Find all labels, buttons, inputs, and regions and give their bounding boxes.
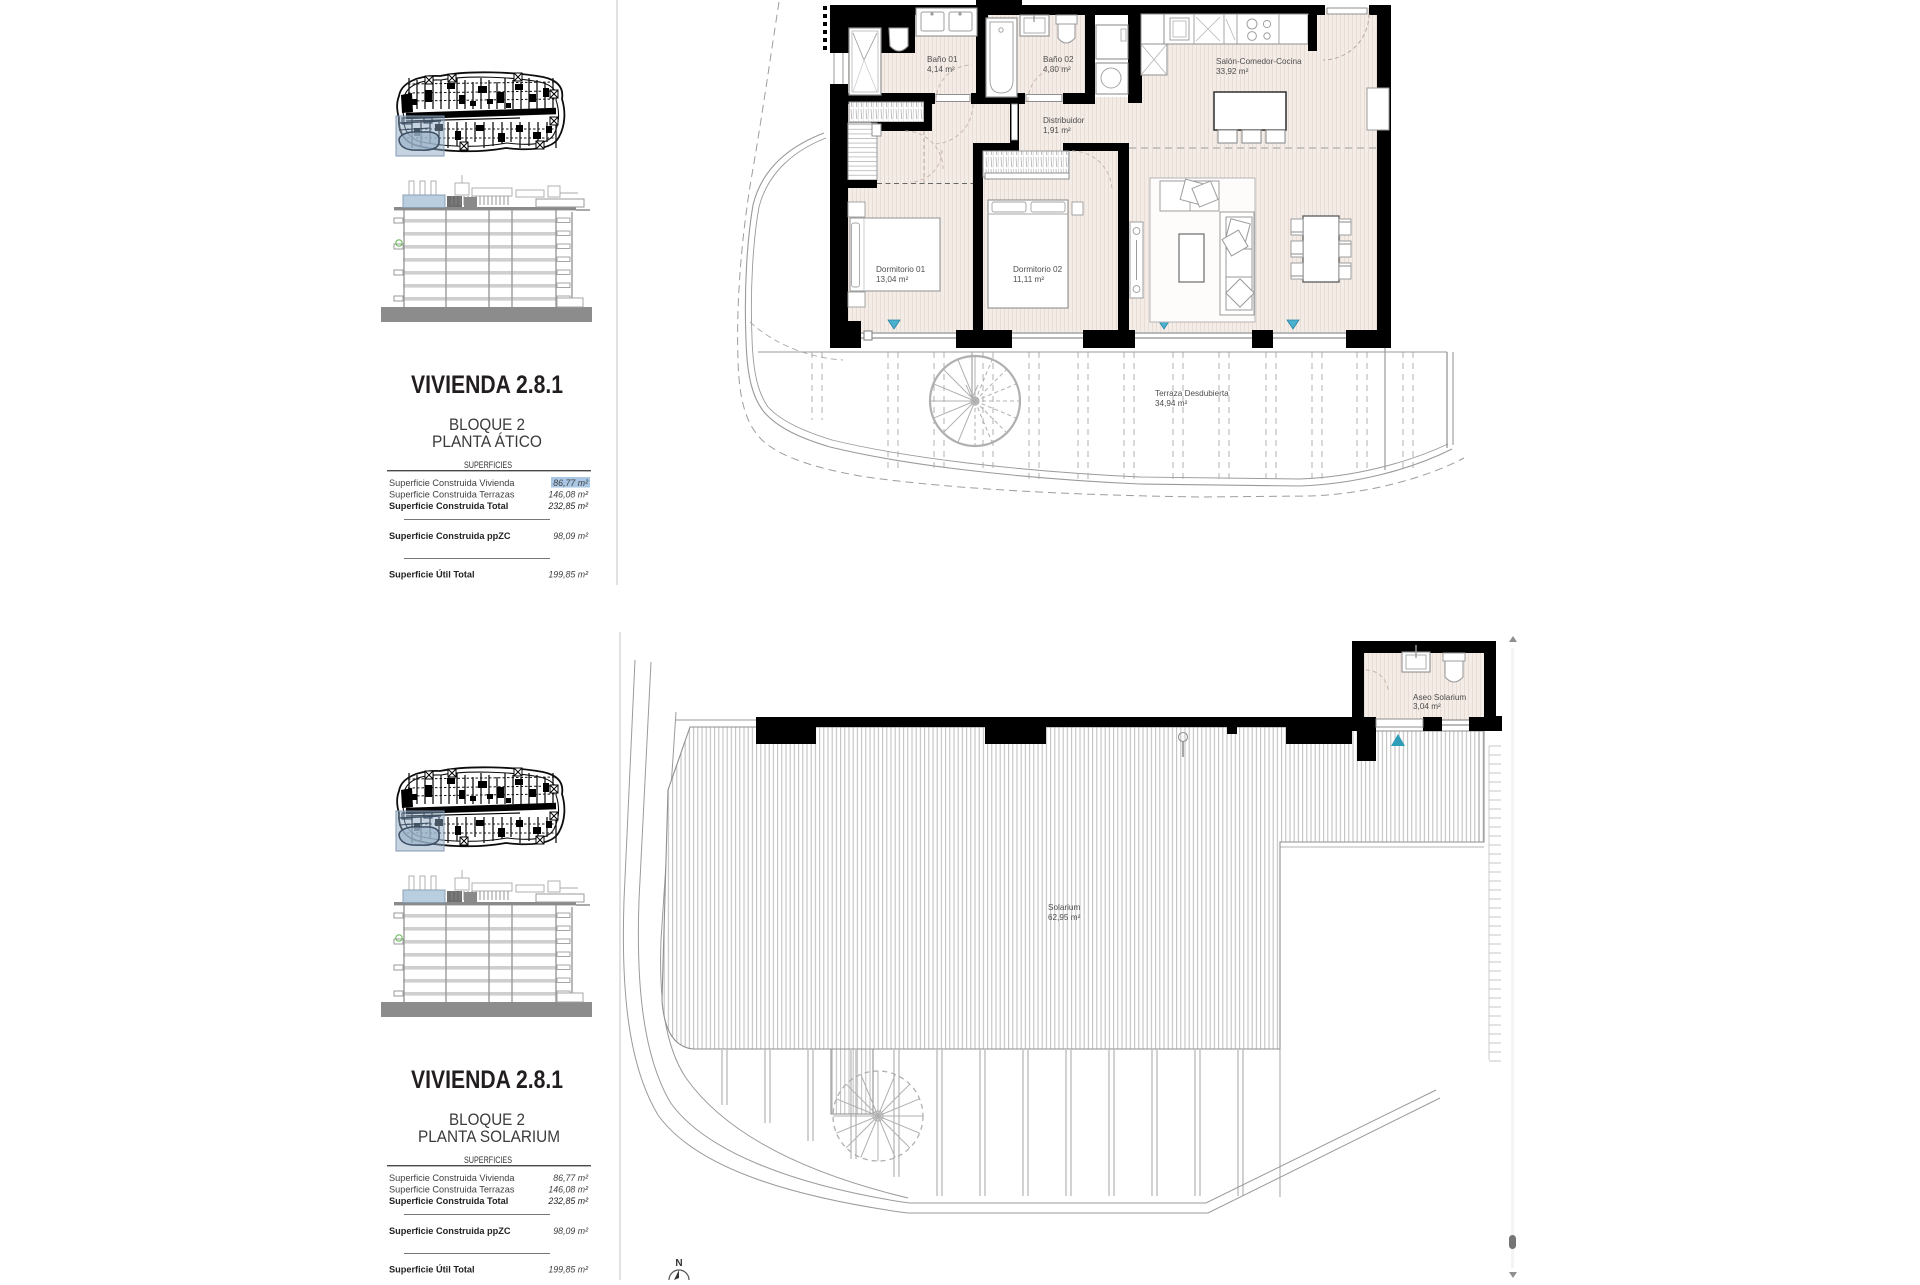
svg-text:232,85 m²: 232,85 m² <box>547 501 589 511</box>
svg-text:Distribuidor: Distribuidor <box>1043 116 1085 125</box>
svg-text:Superficie Construida Terrazas: Superficie Construida Terrazas <box>389 1185 515 1195</box>
svg-text:34,94 m²: 34,94 m² <box>1155 399 1188 408</box>
svg-text:3,04 m²: 3,04 m² <box>1413 702 1441 711</box>
svg-text:PLANTA SOLARIUM: PLANTA SOLARIUM <box>418 1128 560 1146</box>
svg-text:62,95 m²: 62,95 m² <box>1048 913 1081 922</box>
svg-text:BLOQUE 2: BLOQUE 2 <box>449 1111 525 1129</box>
svg-text:Baño 01: Baño 01 <box>927 55 958 64</box>
svg-text:98,09 m²: 98,09 m² <box>553 531 589 541</box>
svg-text:11,11 m²: 11,11 m² <box>1013 275 1044 284</box>
svg-text:Superficie Construida Vivienda: Superficie Construida Vivienda <box>389 478 515 488</box>
svg-text:Superficie Construida ppZC: Superficie Construida ppZC <box>389 531 511 541</box>
svg-text:Terraza Desdubierta: Terraza Desdubierta <box>1155 389 1229 398</box>
svg-text:Solarium: Solarium <box>1048 903 1080 912</box>
svg-text:232,85 m²: 232,85 m² <box>547 1196 589 1206</box>
svg-text:VIVIENDA 2.8.1: VIVIENDA 2.8.1 <box>411 371 563 399</box>
svg-text:1,91 m²: 1,91 m² <box>1043 126 1071 135</box>
svg-text:Superficie Construida Total: Superficie Construida Total <box>389 501 508 511</box>
svg-text:Dormitorio 01: Dormitorio 01 <box>876 265 926 274</box>
svg-text:Superficie Construida Vivienda: Superficie Construida Vivienda <box>389 1173 515 1183</box>
svg-text:SUPERFICIES: SUPERFICIES <box>464 460 512 470</box>
svg-text:146,08 m²: 146,08 m² <box>548 490 589 500</box>
svg-text:PLANTA ÁTICO: PLANTA ÁTICO <box>432 432 542 451</box>
svg-text:4,14 m²: 4,14 m² <box>927 65 955 74</box>
svg-text:Aseo Solarium: Aseo Solarium <box>1413 693 1466 702</box>
svg-text:Superficie Construida Terrazas: Superficie Construida Terrazas <box>389 490 515 500</box>
svg-text:146,08 m²: 146,08 m² <box>548 1185 589 1195</box>
svg-text:199,85 m²: 199,85 m² <box>548 1265 589 1275</box>
svg-text:Salón-Comedor-Cocina: Salón-Comedor-Cocina <box>1216 57 1302 66</box>
svg-text:Superficie Útil Total: Superficie Útil Total <box>389 1264 475 1275</box>
svg-text:86,77 m²: 86,77 m² <box>553 478 589 488</box>
svg-text:13,04 m²: 13,04 m² <box>876 275 909 284</box>
svg-text:Dormitorio 02: Dormitorio 02 <box>1013 265 1063 274</box>
svg-text:BLOQUE 2: BLOQUE 2 <box>449 416 525 434</box>
svg-text:Superficie Construida Total: Superficie Construida Total <box>389 1196 508 1206</box>
svg-text:Superficie Construida ppZC: Superficie Construida ppZC <box>389 1226 511 1236</box>
svg-text:86,77 m²: 86,77 m² <box>553 1173 589 1183</box>
svg-text:33,92 m²: 33,92 m² <box>1216 67 1249 76</box>
svg-text:VIVIENDA 2.8.1: VIVIENDA 2.8.1 <box>411 1066 563 1094</box>
svg-text:4,80 m²: 4,80 m² <box>1043 65 1071 74</box>
svg-text:98,09 m²: 98,09 m² <box>553 1226 589 1236</box>
svg-text:SUPERFICIES: SUPERFICIES <box>464 1155 512 1165</box>
svg-text:N: N <box>675 1258 682 1269</box>
svg-text:199,85 m²: 199,85 m² <box>548 570 589 580</box>
svg-text:Superficie Útil Total: Superficie Útil Total <box>389 569 475 580</box>
svg-text:Baño 02: Baño 02 <box>1043 55 1074 64</box>
